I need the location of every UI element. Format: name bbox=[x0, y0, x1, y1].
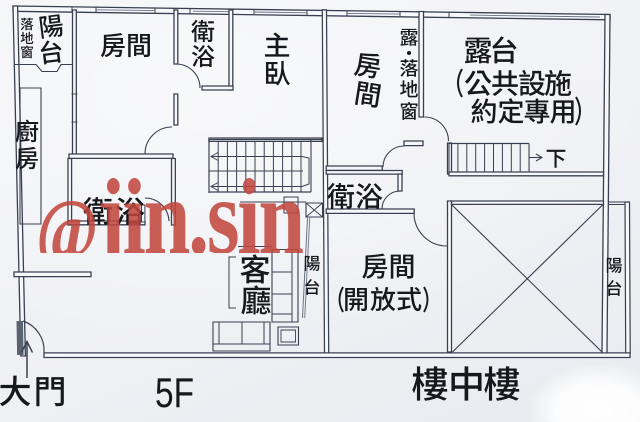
svg-text:5F: 5F bbox=[155, 369, 194, 416]
